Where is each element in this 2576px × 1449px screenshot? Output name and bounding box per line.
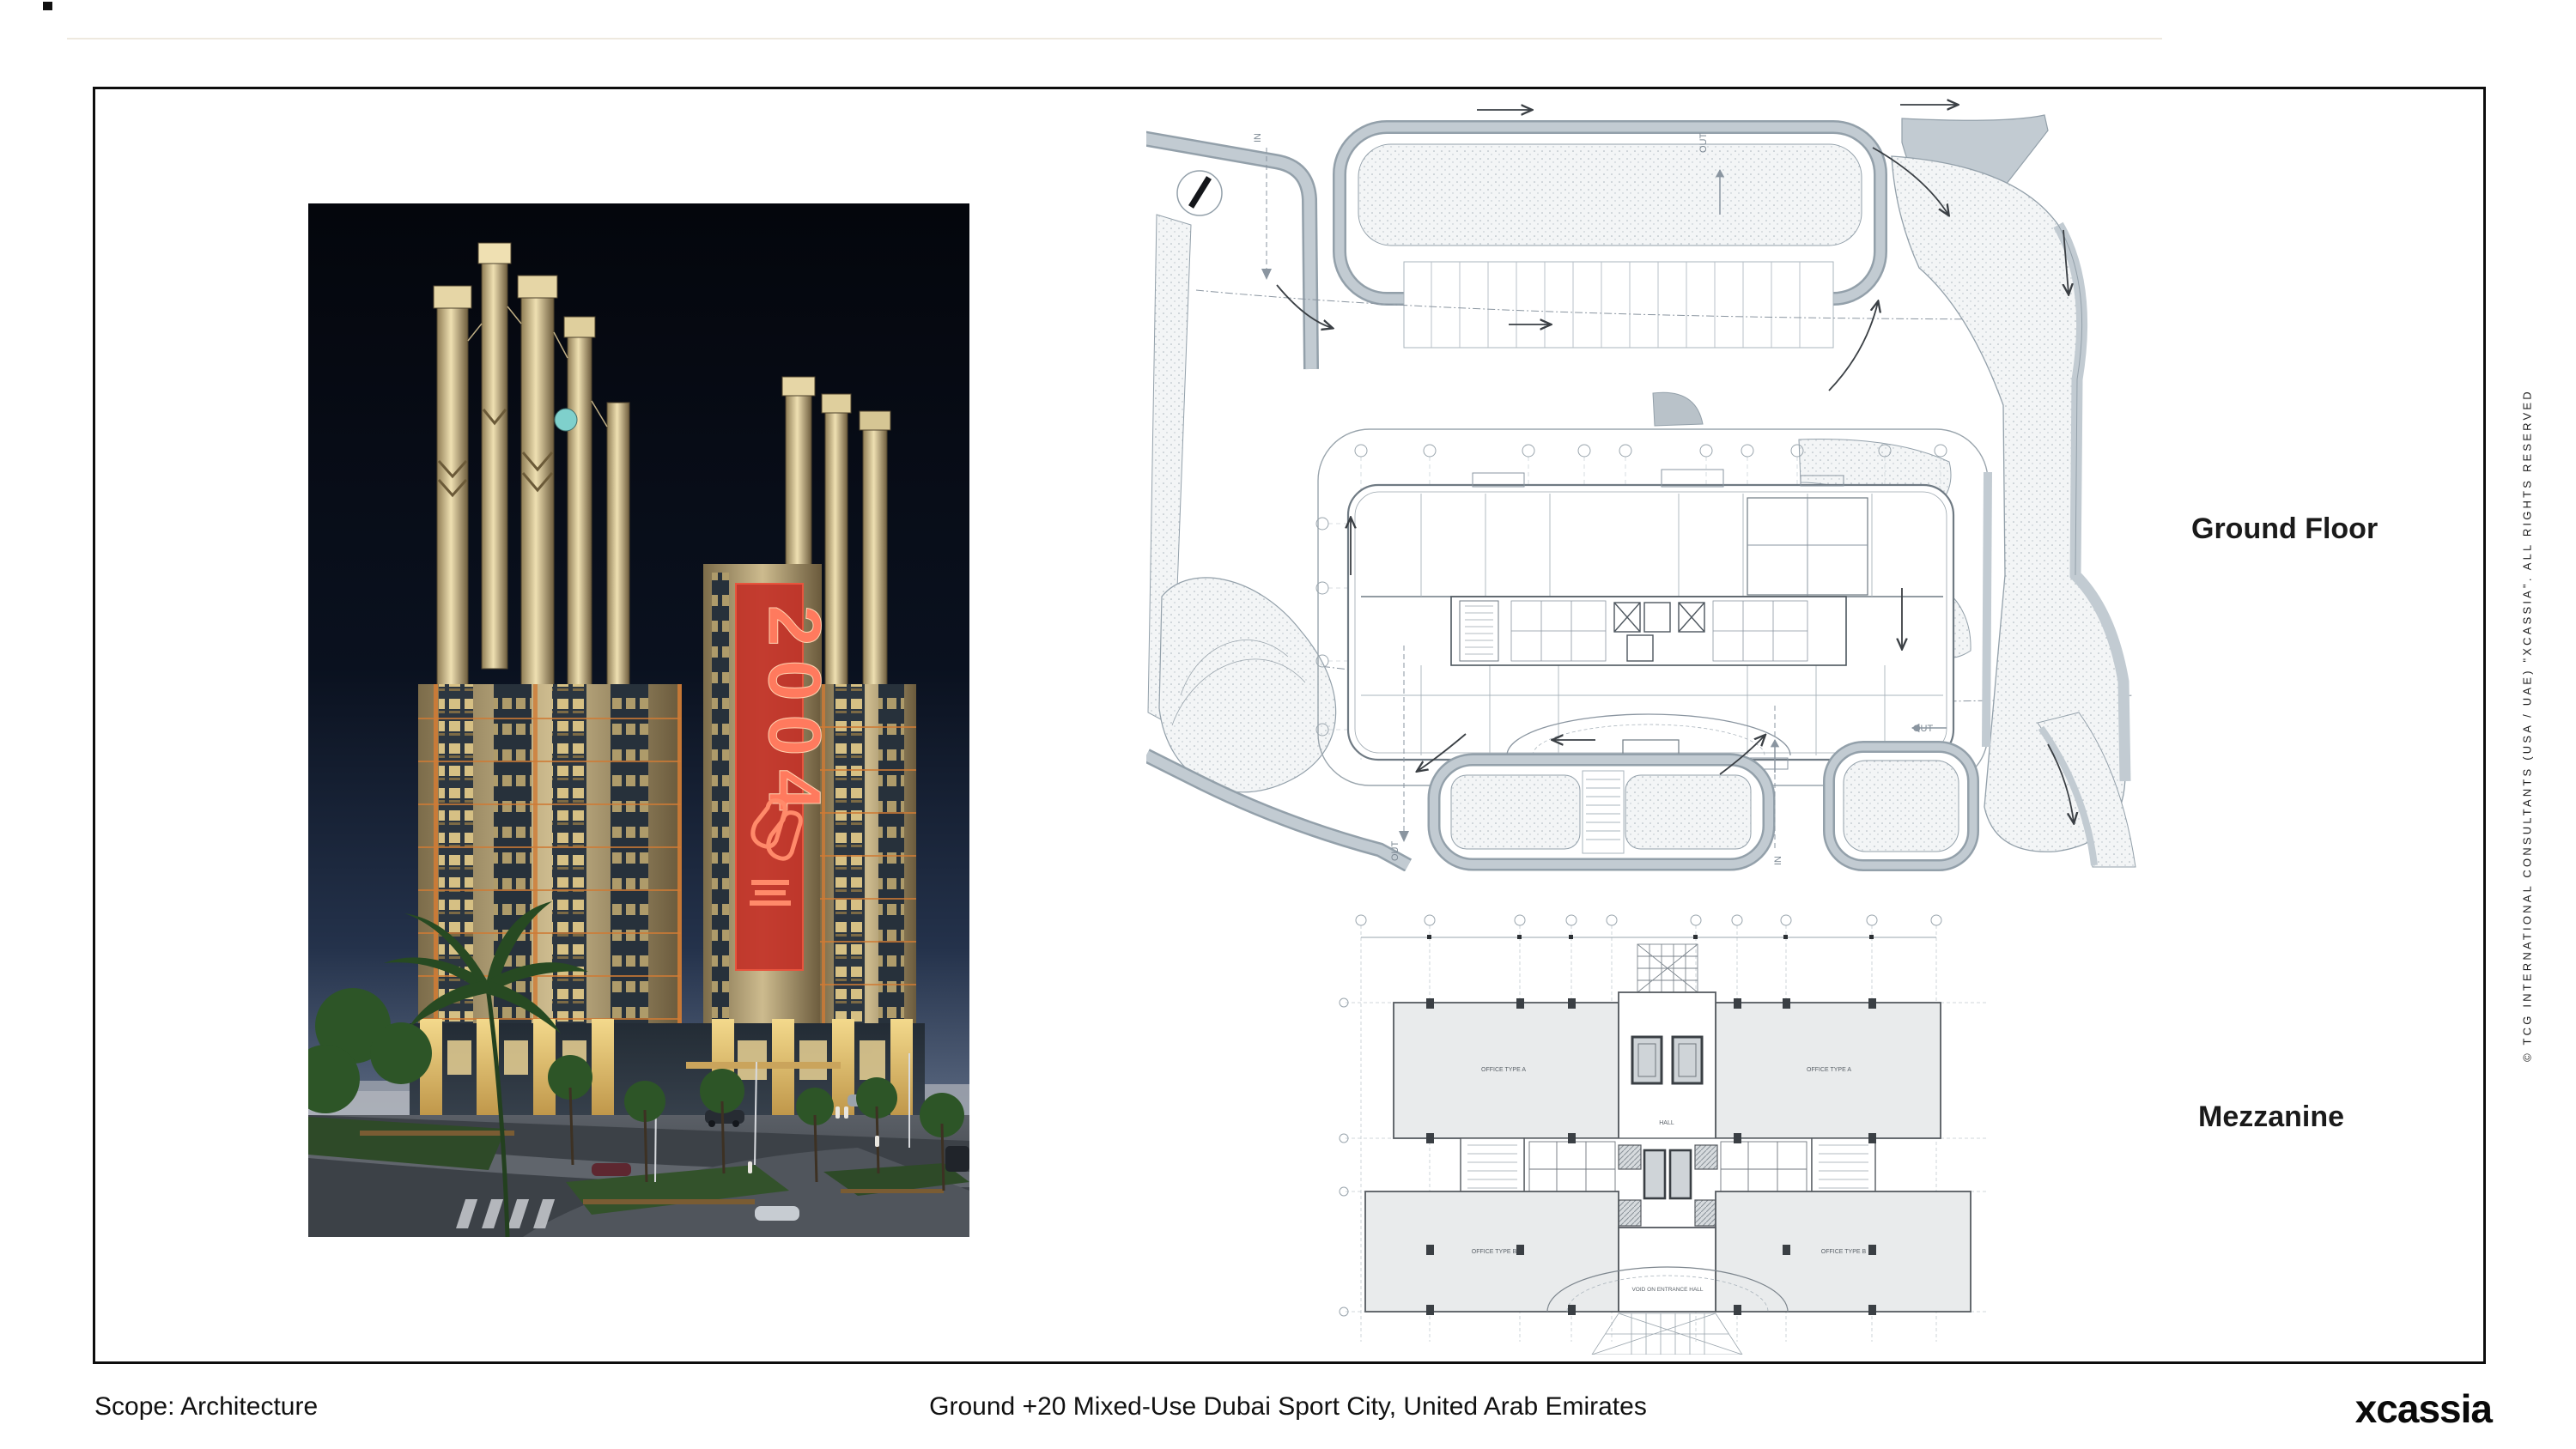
top-landscape-strip — [1340, 127, 1880, 348]
footer-scope: Scope: Architecture — [94, 1392, 318, 1422]
portfolio-sheet: 2004 — [0, 0, 2576, 1449]
entrance-canopy — [686, 1062, 841, 1069]
svg-text:OUT: OUT — [1913, 724, 1934, 734]
scan-artifact-speck — [43, 2, 52, 10]
void-label: VOID ON ENTRANCE HALL — [1631, 1287, 1703, 1293]
xcassia-logo: xcassia — [2355, 1385, 2492, 1432]
svg-text:OUT: OUT — [1698, 133, 1709, 154]
hall-label: HALL — [1659, 1120, 1674, 1126]
building-night-rendering: 2004 — [308, 203, 969, 1237]
footer-project-title: Ground +20 Mixed-Use Dubai Sport City, U… — [929, 1392, 1647, 1422]
building-footprint — [1348, 470, 1953, 783]
logo-rest: cassia — [2376, 1386, 2492, 1431]
mezzanine-floor-plan: HALL OFFICE TYPE A OFFICE TYPE A — [1335, 908, 1996, 1355]
bottom-right-landscape — [1829, 747, 1973, 865]
office-b-left-label: OFFICE TYPE B — [1472, 1249, 1517, 1255]
north-indicator — [1177, 171, 1222, 215]
office-a-left-label: OFFICE TYPE A — [1481, 1067, 1526, 1073]
ground-floor-caption: Ground Floor — [2191, 512, 2378, 546]
svg-text:OUT: OUT — [1390, 841, 1400, 862]
parking-row — [1404, 262, 1833, 348]
ground-floor-site-plan: IN OUT — [1146, 94, 2168, 871]
mezzanine-caption: Mezzanine — [2198, 1100, 2344, 1134]
office-a-right-label: OFFICE TYPE A — [1807, 1067, 1851, 1073]
bottom-landscape-islands — [1434, 760, 1769, 864]
svg-text:IN: IN — [1253, 133, 1263, 142]
scan-artifact-streak — [67, 38, 2162, 39]
svg-text:IN: IN — [1773, 856, 1783, 865]
mezz-bottom-lattice — [1592, 1313, 1742, 1355]
mezz-stairs-left — [1461, 1138, 1524, 1198]
teal-dome — [555, 409, 577, 431]
copyright-text: © TCG INTERNATIONAL CONSULTANTS (USA / U… — [2521, 389, 2534, 1062]
logo-x: x — [2355, 1386, 2377, 1431]
mezz-top-lattice — [1637, 944, 1698, 992]
office-b-right-label: OFFICE TYPE B — [1821, 1249, 1867, 1255]
banner-caption-lines — [750, 880, 791, 906]
banner-year-text: 2004 — [753, 605, 835, 824]
island-walkway — [1583, 771, 1624, 853]
mezz-stairs-right — [1812, 1138, 1875, 1198]
